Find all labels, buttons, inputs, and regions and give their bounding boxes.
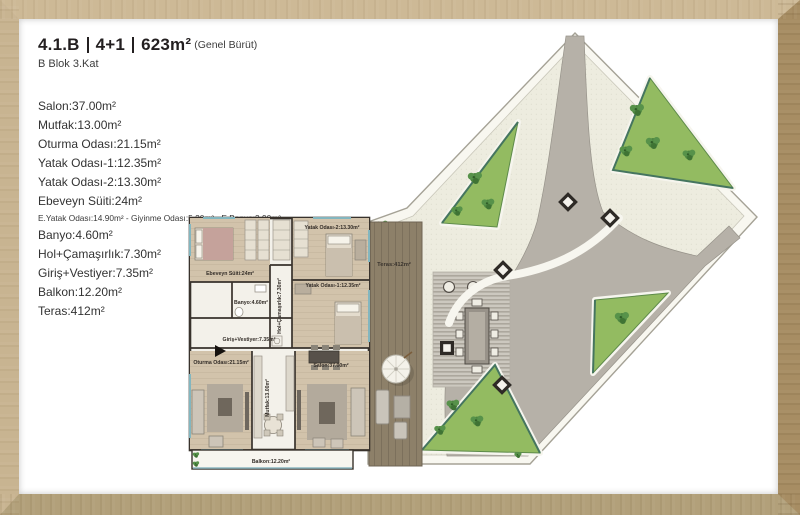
hol-label: Hol+Çamaşırlık:7.30m² bbox=[277, 278, 283, 334]
floor-plan-drawing: Teras:412m² bbox=[185, 18, 785, 488]
oturma-label: Oturma Odası:21.15m² bbox=[193, 360, 249, 366]
ebeveyn-label: Ebeveyn Süiti:24m² bbox=[206, 271, 254, 277]
teras-label: Teras:412m² bbox=[377, 261, 411, 268]
yatak1-label: Yatak Odası-1:12.35m² bbox=[305, 283, 360, 289]
yatak2-label: Yatak Odası-2:13.30m² bbox=[304, 225, 359, 231]
apartment-group: Ebeveyn Süiti:24m² Banyo:4.60m² Hol+Çama… bbox=[190, 218, 369, 469]
gross-area: 623m² bbox=[141, 35, 191, 55]
separator-bar bbox=[87, 37, 89, 53]
terrace-group: Teras:412m² bbox=[368, 33, 757, 466]
mutfak-label: Mutfak:13.00m² bbox=[265, 379, 271, 417]
frame-grain-top bbox=[0, 0, 800, 19]
room-count: 4+1 bbox=[96, 35, 125, 55]
framed-floor-plan-poster: { "header": { "unit": "4.1.B", "rooms": … bbox=[0, 0, 800, 515]
lounge-chair-icon bbox=[444, 282, 455, 293]
unit-code: 4.1.B bbox=[38, 35, 80, 55]
skylight-icon bbox=[440, 341, 454, 355]
banyo-label: Banyo:4.60m² bbox=[234, 300, 268, 306]
frame-grain-left bbox=[0, 0, 19, 515]
giris-label: Giriş+Vestiyer:7.35m² bbox=[223, 337, 276, 343]
balcony-group: Balkon:12.20m² bbox=[192, 450, 353, 469]
frame-grain-bottom bbox=[0, 494, 800, 515]
floor-plan-svg: Teras:412m² bbox=[185, 18, 785, 488]
salon-label: Salon:37.00m² bbox=[313, 363, 348, 369]
private-deck: Teras:412m² bbox=[369, 222, 422, 466]
balkon-label: Balkon:12.20m² bbox=[252, 459, 291, 465]
separator-bar bbox=[132, 37, 134, 53]
